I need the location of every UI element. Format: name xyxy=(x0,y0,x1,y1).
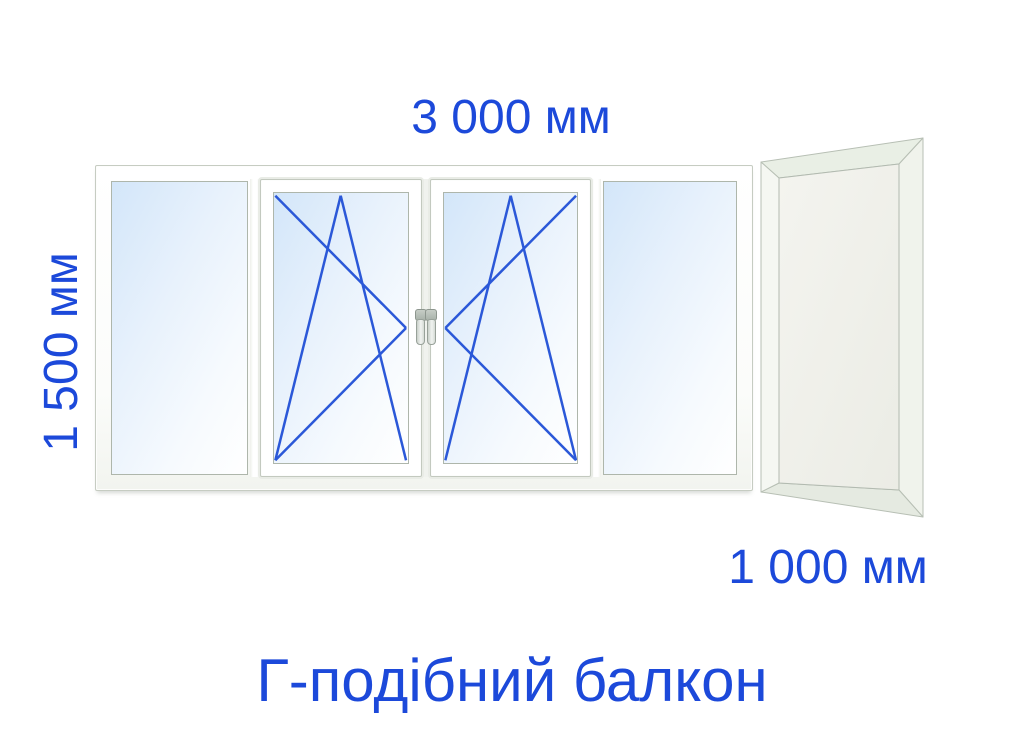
side-frame-left-face xyxy=(761,162,779,492)
fixed-pane-2-glass xyxy=(603,181,737,475)
window-handle-icon xyxy=(424,309,438,347)
mullion-1 xyxy=(250,179,260,477)
side-window-glass xyxy=(779,164,899,490)
tilt-turn-sash-2 xyxy=(430,179,591,477)
balcony-glazing-diagram: 3 000 мм 1 500 мм 1 000 мм xyxy=(0,0,1024,749)
fixed-pane-2 xyxy=(601,179,739,477)
fixed-pane-1 xyxy=(109,179,250,477)
front-width-dimension-label: 3 000 мм xyxy=(411,94,610,142)
side-width-dimension-label: 1 000 мм xyxy=(728,544,927,592)
front-window-panes xyxy=(109,179,739,477)
tilt-turn-sash-1-glass xyxy=(273,192,408,464)
side-window-perspective xyxy=(755,125,935,525)
side-frame-right-face xyxy=(899,138,923,517)
tilt-turn-symbol-left-sash xyxy=(274,193,407,463)
diagram-title: Г-подібний балкон xyxy=(256,648,767,714)
tilt-turn-sash-1 xyxy=(260,179,421,477)
front-height-dimension-label: 1 500 мм xyxy=(38,252,86,451)
mullion-2 xyxy=(591,179,601,477)
handle-lever xyxy=(427,319,436,345)
fixed-pane-1-glass xyxy=(111,181,248,475)
front-window-frame xyxy=(95,165,753,491)
tilt-turn-sash-2-glass xyxy=(443,192,578,464)
tilt-turn-symbol-right-sash xyxy=(444,193,577,463)
